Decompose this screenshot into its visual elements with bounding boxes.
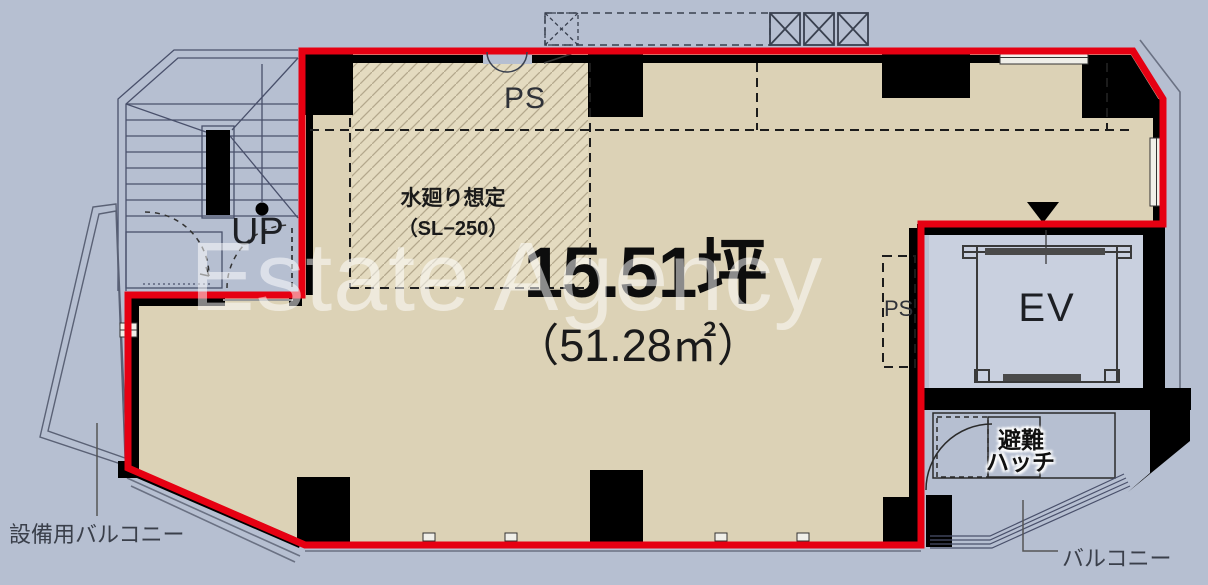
balcony-label: バルコニー	[1062, 541, 1172, 573]
area-m2-label: （51.28㎡）	[488, 309, 788, 374]
elevator-door-top	[985, 248, 1105, 255]
balcony-edge	[930, 474, 1130, 548]
elevator-door-bottom	[1003, 374, 1081, 381]
equipment-balcony	[40, 204, 127, 466]
area-tsubo-label: 15.51坪	[488, 216, 802, 318]
wet-area-note-line1: 水廻り想定	[368, 186, 538, 212]
elevator-label: EV	[1012, 286, 1082, 331]
stair-newel-wall	[206, 130, 230, 215]
entry-arrow	[200, 267, 209, 276]
pipe-shaft-right-label: PS	[884, 296, 913, 322]
equipment-balcony-label: 設備用バルコニー	[9, 517, 185, 549]
escape-hatch-label-line2: ハッチ	[986, 443, 1055, 477]
duct-boxes	[545, 13, 868, 45]
floorplan-canvas: PS PS UP EV 水廻り想定 （SL−250） 15.51坪 （51.28…	[0, 0, 1208, 585]
pipe-shaft-top-label: PS	[504, 82, 546, 116]
stairs-up-label: UP	[231, 211, 284, 254]
